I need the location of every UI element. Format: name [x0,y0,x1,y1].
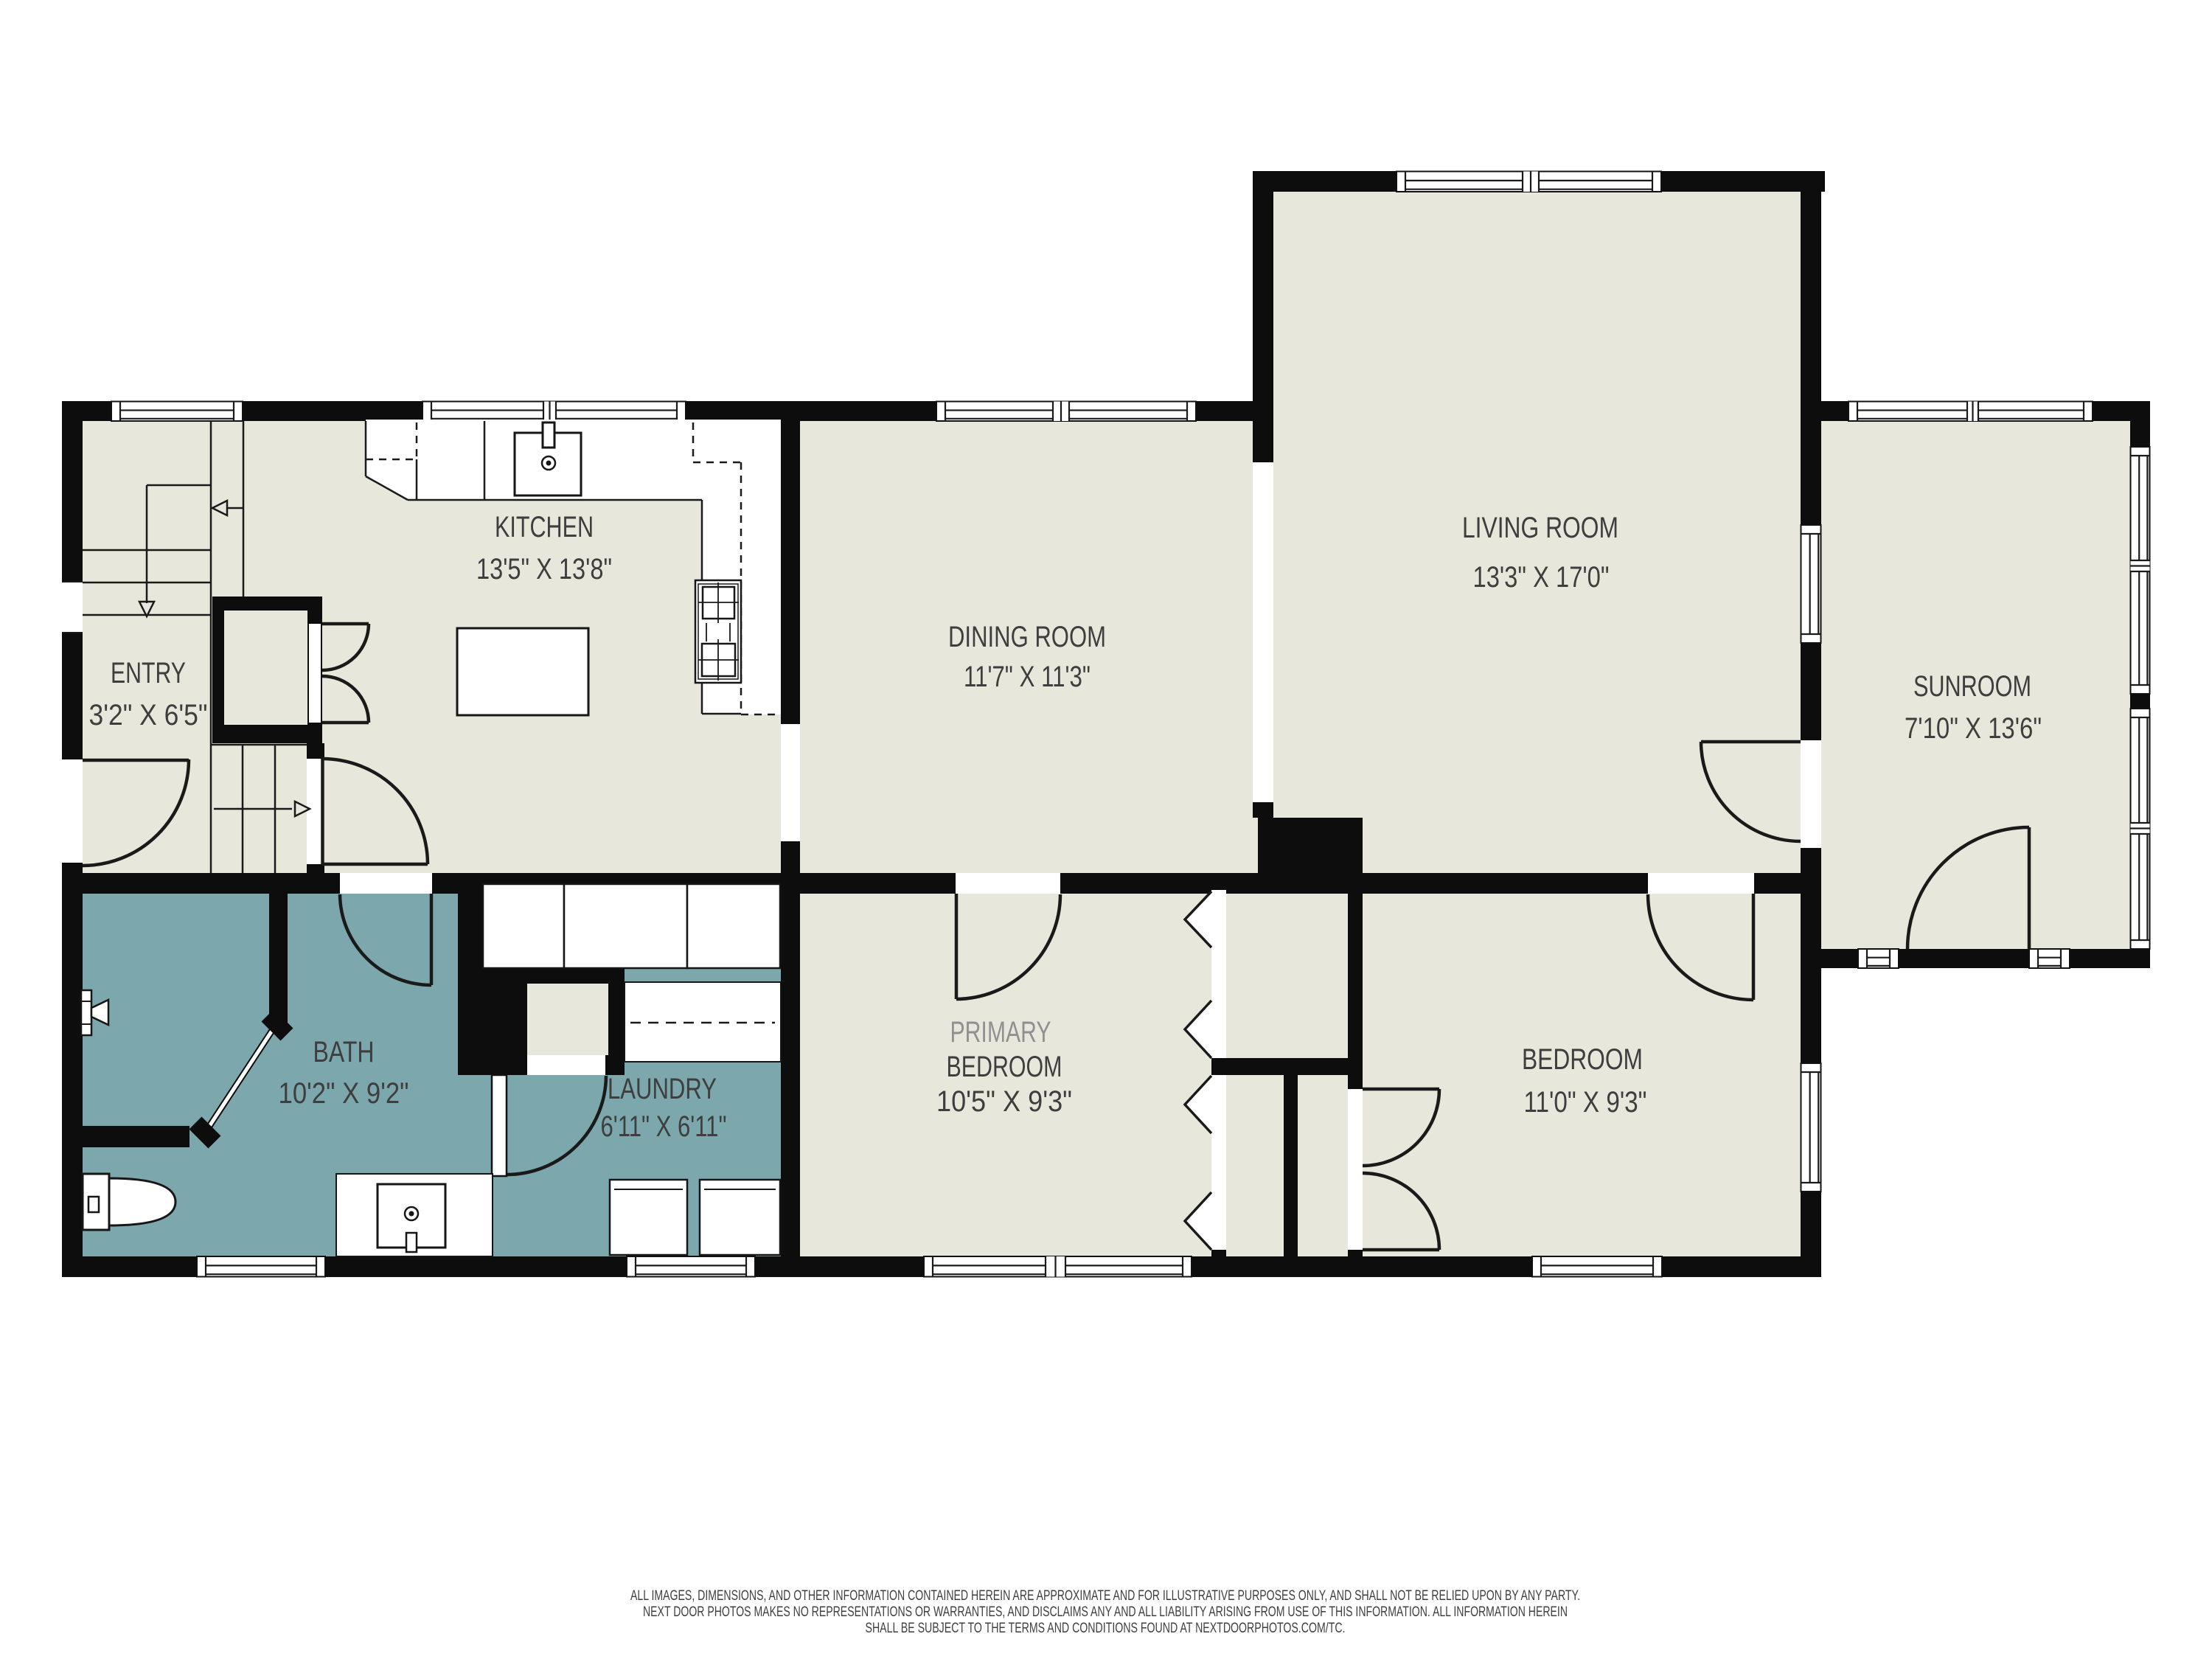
svg-text:13'3" X 17'0": 13'3" X 17'0" [1473,561,1610,594]
svg-text:7'10" X 13'6": 7'10" X 13'6" [1905,712,2042,745]
svg-text:10'5" X 9'3": 10'5" X 9'3" [936,1085,1072,1118]
svg-text:ALL IMAGES, DIMENSIONS, AND OT: ALL IMAGES, DIMENSIONS, AND OTHER INFORM… [630,1588,1580,1604]
svg-text:13'5" X 13'8": 13'5" X 13'8" [476,553,612,585]
svg-text:KITCHEN: KITCHEN [495,511,594,543]
svg-text:LIVING ROOM: LIVING ROOM [1462,512,1618,544]
svg-text:BEDROOM: BEDROOM [1522,1043,1643,1076]
svg-text:BEDROOM: BEDROOM [947,1051,1062,1083]
svg-text:6'11" X 6'11": 6'11" X 6'11" [601,1110,727,1143]
svg-text:NEXT DOOR PHOTOS MAKES NO REPR: NEXT DOOR PHOTOS MAKES NO REPRESENTATION… [643,1604,1568,1620]
svg-text:BATH: BATH [313,1036,375,1068]
svg-text:10'2" X 9'2": 10'2" X 9'2" [279,1077,409,1110]
svg-text:11'0" X 9'3": 11'0" X 9'3" [1524,1086,1647,1119]
svg-text:3'2" X 6'5": 3'2" X 6'5" [89,699,208,731]
svg-text:ENTRY: ENTRY [111,657,186,689]
svg-text:SHALL BE SUBJECT TO THE TERMS: SHALL BE SUBJECT TO THE TERMS AND CONDIT… [866,1621,1346,1636]
svg-text:11'7" X 11'3": 11'7" X 11'3" [964,661,1091,693]
svg-text:DINING ROOM: DINING ROOM [948,621,1106,653]
svg-text:SUNROOM: SUNROOM [1913,670,2031,703]
svg-text:LAUNDRY: LAUNDRY [608,1073,717,1105]
svg-text:PRIMARY: PRIMARY [950,1016,1051,1048]
